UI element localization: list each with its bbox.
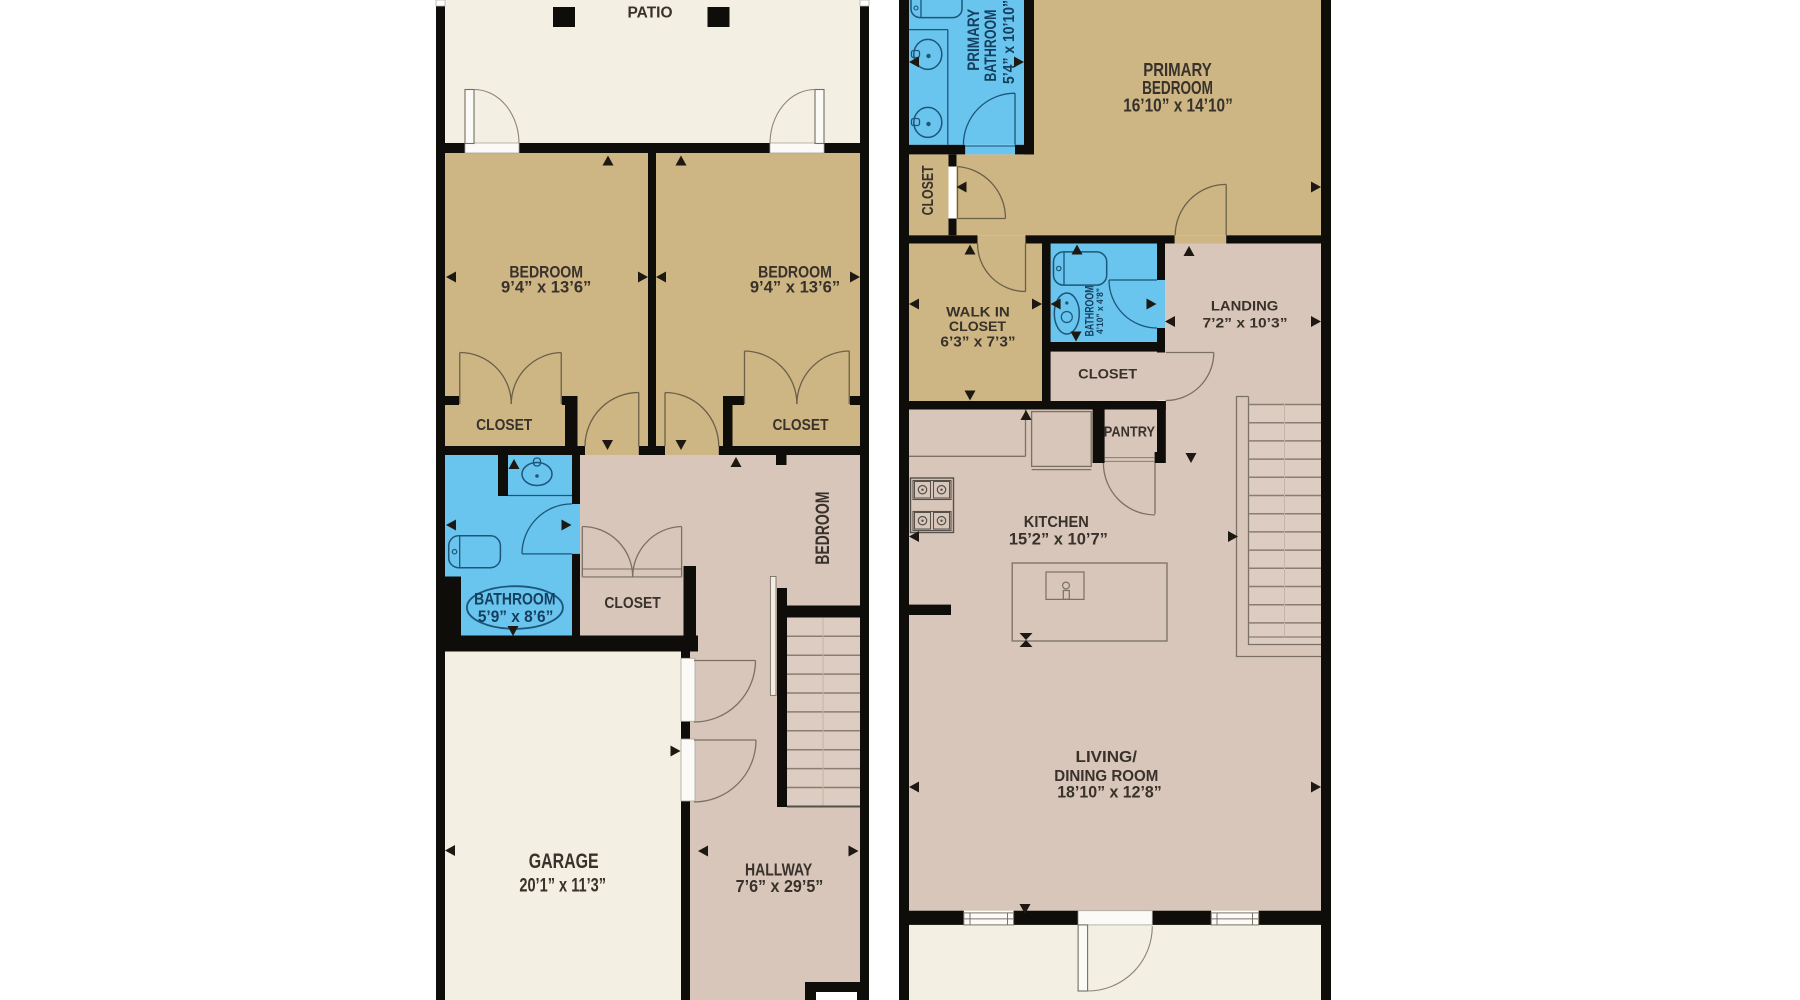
svg-text:BEDROOM: BEDROOM — [813, 492, 834, 565]
svg-text:LIVING/: LIVING/ — [1076, 749, 1138, 766]
svg-text:9’4” x 13’6”: 9’4” x 13’6” — [501, 279, 591, 297]
svg-text:7’6” x 29’5”: 7’6” x 29’5” — [736, 876, 824, 896]
svg-text:18’10” x 12’8”: 18’10” x 12’8” — [1057, 784, 1162, 802]
svg-text:20’1” x 11’3”: 20’1” x 11’3” — [519, 875, 606, 897]
svg-text:CLOSET: CLOSET — [949, 319, 1007, 334]
svg-text:CLOSET: CLOSET — [773, 417, 829, 434]
svg-text:CLOSET: CLOSET — [920, 165, 937, 215]
svg-text:7’2” x 10’3”: 7’2” x 10’3” — [1203, 315, 1288, 331]
svg-text:BATHROOM: BATHROOM — [474, 591, 555, 609]
svg-text:GARAGE: GARAGE — [529, 850, 599, 873]
svg-text:5’9” x 8’6”: 5’9” x 8’6” — [478, 608, 554, 626]
svg-text:WALK IN: WALK IN — [946, 305, 1010, 320]
svg-text:5’4” x 10’10”: 5’4” x 10’10” — [1001, 0, 1018, 84]
svg-text:PANTRY: PANTRY — [1104, 425, 1155, 441]
svg-text:CLOSET: CLOSET — [604, 595, 661, 612]
svg-text:16’10” x 14’10”: 16’10” x 14’10” — [1123, 96, 1233, 116]
svg-text:CLOSET: CLOSET — [1078, 366, 1138, 381]
svg-text:PATIO: PATIO — [628, 5, 673, 22]
svg-text:KITCHEN: KITCHEN — [1024, 514, 1089, 531]
svg-text:9’4” x 13’6”: 9’4” x 13’6” — [750, 279, 840, 297]
svg-text:LANDING: LANDING — [1211, 299, 1279, 314]
svg-text:4’10” x 4’8”: 4’10” x 4’8” — [1095, 288, 1106, 334]
svg-text:BATHROOM: BATHROOM — [981, 10, 1000, 82]
svg-text:DINING ROOM: DINING ROOM — [1054, 768, 1158, 785]
svg-text:CLOSET: CLOSET — [476, 417, 532, 434]
svg-text:PRIMARY: PRIMARY — [1143, 60, 1212, 80]
svg-text:6’3” x 7’3”: 6’3” x 7’3” — [940, 335, 1015, 351]
svg-text:15’2” x 10’7”: 15’2” x 10’7” — [1009, 530, 1108, 548]
